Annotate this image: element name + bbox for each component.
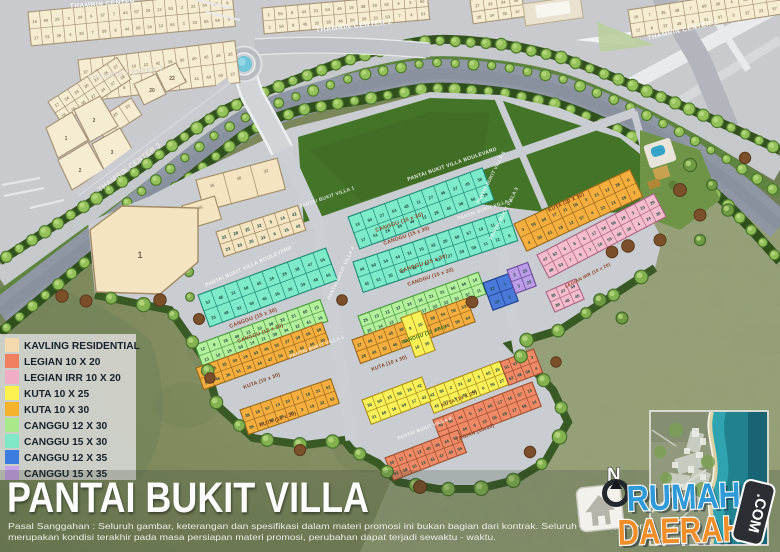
svg-text:KUTA 10 X 25: KUTA 10 X 25 (24, 389, 89, 400)
svg-text:merupakan kondisi terakhir pad: merupakan kondisi terakhir pada masa per… (8, 532, 496, 542)
svg-text:22: 22 (169, 76, 175, 82)
svg-text:LEGIAN 10 X 20: LEGIAN 10 X 20 (24, 357, 101, 368)
svg-text:CANGGU 15 X 30: CANGGU 15 X 30 (24, 437, 108, 448)
svg-text:PANTAI BUKIT VILLA: PANTAI BUKIT VILLA (7, 474, 369, 522)
svg-text:1: 1 (137, 250, 142, 260)
svg-text:DAERAH: DAERAH (617, 508, 744, 552)
svg-text:2: 2 (93, 118, 96, 124)
svg-text:2: 2 (79, 168, 82, 174)
svg-text:1: 1 (65, 136, 68, 142)
svg-text:LEGIAN IRR 10 X 20: LEGIAN IRR 10 X 20 (24, 373, 121, 384)
svg-text:KAVLING RESIDENTIAL: KAVLING RESIDENTIAL (24, 341, 140, 352)
svg-text:CANGGU 12 X 30: CANGGU 12 X 30 (24, 421, 108, 432)
svg-text:CANGGU 12 X 35: CANGGU 12 X 35 (24, 453, 108, 464)
svg-text:20: 20 (149, 88, 155, 94)
svg-text:KUTA 10 X 30: KUTA 10 X 30 (24, 405, 89, 416)
svg-text:3: 3 (111, 150, 114, 156)
